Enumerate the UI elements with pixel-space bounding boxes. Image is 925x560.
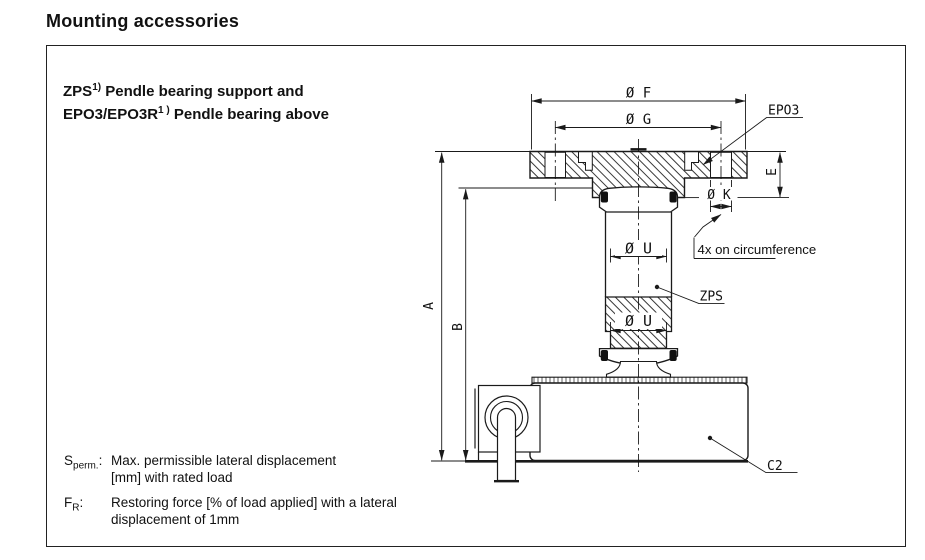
zps-leader-dot: [655, 285, 659, 289]
page: Mounting accessories ZPS1) Pendle bearin…: [0, 0, 925, 560]
dim-k-label: Ø K: [707, 188, 731, 203]
seal-bottom-right: [670, 350, 677, 361]
technical-drawing: Ø F Ø G Ø U Ø U Ø K A B E EPO3 ZPS C2 4x…: [0, 0, 925, 560]
note-4x-arrow: [695, 215, 722, 238]
dim-e-label: E: [765, 168, 780, 176]
c2-label: C2: [767, 459, 783, 474]
c2-load-cell: [431, 377, 748, 481]
dim-b-label: B: [451, 323, 466, 331]
seal-top-left: [601, 192, 608, 203]
dim-u-upper-label: Ø U: [625, 240, 652, 258]
load-cell-top-plate: [532, 377, 747, 383]
epo3-label: EPO3: [768, 104, 799, 119]
dim-f-label: Ø F: [626, 86, 651, 102]
seal-bottom-left: [601, 350, 608, 361]
dim-g-label: Ø G: [626, 112, 651, 128]
note-4x-label: 4x on circumference: [698, 242, 817, 257]
dim-a-label: A: [422, 302, 437, 310]
cable: [498, 409, 516, 481]
zps-label: ZPS: [700, 290, 723, 305]
cable-gland: [475, 386, 540, 482]
seal-top-right: [670, 192, 677, 203]
dim-u-lower-label: Ø U: [625, 312, 652, 330]
c2-leader-dot: [708, 436, 712, 440]
load-cell-body: [530, 383, 748, 461]
